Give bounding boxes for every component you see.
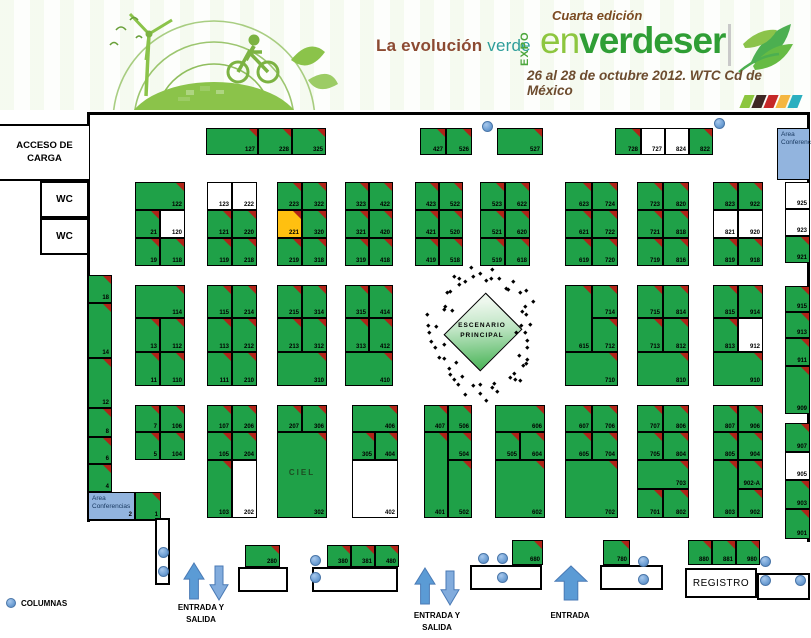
- booth-105[interactable]: 105: [207, 432, 232, 460]
- booth-502[interactable]: 502: [448, 460, 472, 518]
- booth-821[interactable]: 821: [713, 210, 738, 238]
- booth-320[interactable]: 320: [302, 210, 327, 238]
- booth-number: 623: [579, 202, 589, 209]
- booth-713[interactable]: 713: [637, 318, 663, 352]
- booth-923[interactable]: 923: [785, 209, 810, 236]
- booth-707[interactable]: 707: [637, 405, 663, 432]
- stage-dot: [484, 279, 488, 283]
- booth-914[interactable]: 914: [738, 285, 763, 318]
- booth-620[interactable]: 620: [505, 210, 530, 238]
- booth-6[interactable]: 6: [88, 437, 112, 464]
- booth-number: 823: [725, 202, 735, 209]
- booth-901[interactable]: 901: [785, 509, 810, 539]
- booth-204[interactable]: 204: [232, 432, 257, 460]
- booth-number: 714: [605, 310, 615, 317]
- booth-805[interactable]: 805: [713, 432, 738, 460]
- booth-715[interactable]: 715: [637, 285, 663, 318]
- booth-number: 306: [314, 424, 324, 431]
- booth-12[interactable]: 12: [88, 358, 112, 408]
- booth-number: 115: [219, 310, 229, 317]
- stage-dot: [442, 356, 446, 360]
- booth-312[interactable]: 312: [302, 318, 327, 352]
- booth-221[interactable]: 221: [277, 210, 302, 238]
- booth-number: 480: [386, 559, 396, 566]
- booth-719[interactable]: 719: [637, 238, 663, 266]
- booth-number: 606: [532, 424, 542, 431]
- booth-912[interactable]: 912: [738, 318, 763, 352]
- booth-780[interactable]: 780: [603, 540, 630, 565]
- booth-21[interactable]: 21: [135, 210, 160, 238]
- booth-911[interactable]: 911: [785, 338, 810, 366]
- booth-207[interactable]: 207: [277, 405, 302, 432]
- column-marker: [478, 553, 489, 564]
- booth-number: 220: [244, 230, 254, 237]
- booth-222[interactable]: 222: [232, 182, 257, 210]
- booth-number: 980: [747, 557, 757, 564]
- stage-label: ESCENARIOPRINCIPAL: [448, 291, 516, 371]
- booth-number: 724: [605, 202, 615, 209]
- expo-vertical-label: EXPO: [519, 50, 531, 66]
- booth-1[interactable]: 1: [135, 492, 161, 520]
- booth-803[interactable]: 803: [713, 460, 738, 518]
- booth-121[interactable]: 121: [207, 210, 232, 238]
- booth-710[interactable]: 710: [565, 352, 618, 386]
- booth-812[interactable]: 812: [663, 318, 689, 352]
- booth-819[interactable]: 819: [713, 238, 738, 266]
- booth-number: 810: [676, 378, 686, 385]
- booth-number: 923: [797, 228, 807, 235]
- booth-number: 103: [219, 510, 229, 517]
- booth-526[interactable]: 526: [446, 128, 472, 155]
- booth-number: 215: [289, 310, 299, 317]
- booth-212[interactable]: 212: [232, 318, 257, 352]
- booth-number: 506: [459, 424, 469, 431]
- booth-number: 901: [797, 531, 807, 538]
- column-marker: [497, 553, 508, 564]
- booth-904[interactable]: 904: [738, 432, 763, 460]
- booth-623[interactable]: 623: [565, 182, 592, 210]
- booth-607[interactable]: 607: [565, 405, 592, 432]
- booth-504[interactable]: 504: [448, 432, 472, 460]
- booth-19[interactable]: 19: [135, 238, 160, 266]
- booth-602[interactable]: 602: [495, 460, 545, 518]
- booth-401[interactable]: 401: [424, 432, 448, 518]
- booth-number: 212: [244, 344, 254, 351]
- booth-909[interactable]: 909: [785, 366, 810, 414]
- booth-number: 504: [459, 452, 469, 459]
- service-counter: [312, 567, 398, 592]
- booth-number: 812: [676, 344, 686, 351]
- booth-823[interactable]: 823: [713, 182, 738, 210]
- booth-606[interactable]: 606: [495, 405, 545, 432]
- stage-dot: [491, 268, 495, 272]
- column-marker: [714, 118, 725, 129]
- booth-906[interactable]: 906: [738, 405, 763, 432]
- booth-number: 123: [219, 202, 229, 209]
- booth-407[interactable]: 407: [424, 405, 448, 432]
- booth-813[interactable]: 813: [713, 318, 738, 352]
- stage-dot: [472, 275, 476, 279]
- booth-306[interactable]: 306: [302, 405, 327, 432]
- booth-number: 727: [652, 147, 662, 154]
- booth-380[interactable]: 380: [327, 545, 351, 567]
- booth-number: 502: [459, 510, 469, 517]
- booth-219[interactable]: 219: [277, 238, 302, 266]
- booth-680[interactable]: 680: [512, 540, 543, 565]
- booth-number: 907: [797, 444, 807, 451]
- booth-280[interactable]: 280: [245, 545, 280, 567]
- booth-822[interactable]: 822: [689, 128, 713, 155]
- logo-separator: [728, 24, 731, 66]
- booth-314[interactable]: 314: [302, 285, 327, 318]
- booth-number: 213: [289, 344, 299, 351]
- booth-110[interactable]: 110: [160, 352, 185, 386]
- booth-321[interactable]: 321: [345, 210, 369, 238]
- booth-number: 4: [106, 484, 109, 491]
- booth-727[interactable]: 727: [641, 128, 665, 155]
- booth-number: 618: [517, 258, 527, 265]
- booth-802[interactable]: 802: [663, 489, 689, 518]
- booth-114[interactable]: 114: [135, 285, 185, 318]
- booth-922[interactable]: 922: [738, 182, 763, 210]
- booth-313[interactable]: 313: [345, 318, 369, 352]
- booth-704[interactable]: 704: [592, 432, 618, 460]
- booth-18[interactable]: 18: [88, 275, 112, 303]
- booth-215[interactable]: 215: [277, 285, 302, 318]
- booth-220[interactable]: 220: [232, 210, 257, 238]
- booth-number: 814: [676, 310, 686, 317]
- booth-number: 704: [605, 452, 615, 459]
- booth-703[interactable]: 703: [637, 460, 689, 489]
- booth-404[interactable]: 404: [375, 432, 398, 460]
- booth-980[interactable]: 980: [736, 540, 760, 565]
- booth-number: 320: [314, 230, 324, 237]
- booth-number: 113: [219, 344, 229, 351]
- booth-518[interactable]: 518: [439, 238, 463, 266]
- booth-381[interactable]: 381: [351, 545, 375, 567]
- booth-302[interactable]: 302CIEL: [277, 432, 327, 518]
- booth-number: 221: [289, 230, 299, 237]
- booth-422[interactable]: 422: [369, 182, 393, 210]
- booth-number: 604: [532, 452, 542, 459]
- entrance-arrow-up-icon: [183, 562, 205, 605]
- booth-number: 218: [244, 258, 254, 265]
- booth-number: 414: [380, 310, 390, 317]
- column-marker: [795, 575, 806, 586]
- booth-number: 406: [385, 424, 395, 431]
- booth-618[interactable]: 618: [505, 238, 530, 266]
- booth-705[interactable]: 705: [637, 432, 663, 460]
- stage-dot: [525, 339, 529, 343]
- booth-723[interactable]: 723: [637, 182, 663, 210]
- booth-724[interactable]: 724: [592, 182, 618, 210]
- booth-number: 607: [579, 424, 589, 431]
- booth-number: 422: [380, 202, 390, 209]
- booth-number: 915: [797, 304, 807, 311]
- conference-area-1[interactable]: Area Conferencias: [777, 128, 810, 180]
- booth-410[interactable]: 410: [345, 352, 393, 386]
- booth-228[interactable]: 228: [258, 128, 292, 155]
- booth-480[interactable]: 480: [375, 545, 399, 567]
- booth-number: 204: [244, 452, 254, 459]
- booth-14[interactable]: 14: [88, 303, 112, 358]
- entrance-label: ENTRADA YSALIDA: [392, 610, 482, 634]
- booth-706[interactable]: 706: [592, 405, 618, 432]
- booth-number: 302: [314, 510, 324, 517]
- booth-number: 313: [356, 344, 366, 351]
- booth-210[interactable]: 210: [232, 352, 257, 386]
- booth-804[interactable]: 804: [663, 432, 689, 460]
- booth-number: 680: [530, 557, 540, 564]
- booth-122[interactable]: 122: [135, 182, 185, 210]
- booth-13[interactable]: 13: [135, 318, 160, 352]
- booth-414[interactable]: 414: [369, 285, 393, 318]
- booth-number: 526: [459, 147, 469, 154]
- booth-number: 318: [314, 258, 324, 265]
- booth-921[interactable]: 921: [785, 236, 810, 263]
- booth-number: 605: [579, 452, 589, 459]
- stage-dot: [511, 280, 515, 284]
- booth-number: 619: [579, 258, 589, 265]
- booth-119[interactable]: 119: [207, 238, 232, 266]
- booth-number: 914: [750, 310, 760, 317]
- booth-number: 918: [750, 258, 760, 265]
- booth-number: 228: [279, 147, 289, 154]
- booth-806[interactable]: 806: [663, 405, 689, 432]
- booth-714[interactable]: 714: [592, 285, 618, 318]
- booth-number: 322: [314, 202, 324, 209]
- booth-11[interactable]: 11: [135, 352, 160, 386]
- booth-621[interactable]: 621: [565, 210, 592, 238]
- booth-902-A[interactable]: 902-A: [738, 460, 763, 489]
- booth-810[interactable]: 810: [637, 352, 689, 386]
- booth-419[interactable]: 419: [415, 238, 439, 266]
- booth-310[interactable]: 310: [277, 352, 327, 386]
- booth-number: 104: [172, 452, 182, 459]
- booth-605[interactable]: 605: [565, 432, 592, 460]
- booth-880[interactable]: 880: [688, 540, 712, 565]
- booth-number: 18: [102, 295, 109, 302]
- booth-number: 206: [244, 424, 254, 431]
- booth-218[interactable]: 218: [232, 238, 257, 266]
- booth-number: 380: [338, 559, 348, 566]
- booth-816[interactable]: 816: [663, 238, 689, 266]
- booth-420[interactable]: 420: [369, 210, 393, 238]
- booth-423[interactable]: 423: [415, 182, 439, 210]
- booth-319[interactable]: 319: [345, 238, 369, 266]
- hall-wall-top: [88, 112, 810, 115]
- booth-202[interactable]: 202: [232, 460, 257, 518]
- booth-number: 410: [380, 378, 390, 385]
- booth-107[interactable]: 107: [207, 405, 232, 432]
- booth-number: 805: [725, 452, 735, 459]
- booth-915[interactable]: 915: [785, 286, 810, 312]
- stage-dot: [518, 290, 522, 294]
- booth-120[interactable]: 120: [160, 210, 185, 238]
- booth-615[interactable]: 615: [565, 285, 592, 352]
- booth-712[interactable]: 712: [592, 318, 618, 352]
- booth-number: 620: [517, 230, 527, 237]
- booth-820[interactable]: 820: [663, 182, 689, 210]
- leaf-logo-icon: [733, 14, 799, 76]
- column-legend-icon: [6, 598, 16, 608]
- entrance-label: ENTRADA: [525, 610, 615, 622]
- booth-4[interactable]: 4: [88, 464, 112, 492]
- booth-number: 780: [617, 557, 627, 564]
- booth-418[interactable]: 418: [369, 238, 393, 266]
- booth-323[interactable]: 323: [345, 182, 369, 210]
- booth-7[interactable]: 7: [135, 405, 160, 432]
- booth-number: 120: [172, 230, 182, 237]
- booth-406[interactable]: 406: [352, 405, 398, 432]
- booth-number: 922: [750, 202, 760, 209]
- booth-918[interactable]: 918: [738, 238, 763, 266]
- column-marker: [760, 556, 771, 567]
- booth-920[interactable]: 920: [738, 210, 763, 238]
- booth-number: 822: [700, 147, 710, 154]
- booth-number: 813: [725, 344, 735, 351]
- booth-305[interactable]: 305: [352, 432, 375, 460]
- booth-913[interactable]: 913: [785, 312, 810, 338]
- ciel-brand-label: CIEL: [278, 468, 326, 477]
- booth-881[interactable]: 881: [712, 540, 736, 565]
- booth-number: 906: [750, 424, 760, 431]
- booth-907[interactable]: 907: [785, 423, 810, 452]
- banner-tagline: La evolución verde: [376, 36, 531, 56]
- booth-number: 622: [517, 202, 527, 209]
- column-marker: [482, 121, 493, 132]
- booth-523[interactable]: 523: [480, 182, 505, 210]
- booth-206[interactable]: 206: [232, 405, 257, 432]
- booth-number: 402: [385, 510, 395, 517]
- booth-520[interactable]: 520: [439, 210, 463, 238]
- booth-106[interactable]: 106: [160, 405, 185, 432]
- stage-dot: [449, 373, 453, 377]
- stage-dot: [526, 345, 530, 349]
- booth-519[interactable]: 519: [480, 238, 505, 266]
- booth-903[interactable]: 903: [785, 480, 810, 509]
- stage-dot: [517, 354, 521, 358]
- booth-number: 815: [725, 310, 735, 317]
- booth-527[interactable]: 527: [497, 128, 543, 155]
- column-marker: [310, 572, 321, 583]
- booth-number: 315: [356, 310, 366, 317]
- booth-910[interactable]: 910: [713, 352, 763, 386]
- column-marker: [638, 556, 649, 567]
- booth-number: 210: [244, 378, 254, 385]
- stage-dot: [453, 377, 457, 381]
- booth-111[interactable]: 111: [207, 352, 232, 386]
- booth-103[interactable]: 103: [207, 460, 232, 518]
- booth-number: 703: [676, 481, 686, 488]
- conference-area-2[interactable]: Area Conferencias2: [88, 492, 135, 520]
- booth-104[interactable]: 104: [160, 432, 185, 460]
- booth-522[interactable]: 522: [439, 182, 463, 210]
- booth-720[interactable]: 720: [592, 238, 618, 266]
- stage-dot: [523, 304, 527, 308]
- booth-622[interactable]: 622: [505, 182, 530, 210]
- stage-dot: [426, 323, 430, 327]
- booth-number: 114: [172, 310, 182, 317]
- booth-721[interactable]: 721: [637, 210, 663, 238]
- booth-number: 122: [172, 202, 182, 209]
- booth-427[interactable]: 427: [420, 128, 446, 155]
- booth-127[interactable]: 127: [206, 128, 258, 155]
- booth-number: 521: [492, 230, 502, 237]
- booth-112[interactable]: 112: [160, 318, 185, 352]
- booth-number: 314: [314, 310, 324, 317]
- booth-325[interactable]: 325: [292, 128, 326, 155]
- booth-118[interactable]: 118: [160, 238, 185, 266]
- booth-number: 404: [385, 452, 395, 459]
- booth-number: 312: [314, 344, 324, 351]
- booth-702[interactable]: 702: [565, 460, 618, 518]
- booth-number: 921: [797, 255, 807, 262]
- booth-8[interactable]: 8: [88, 408, 112, 437]
- booth-818[interactable]: 818: [663, 210, 689, 238]
- booth-number: 5: [154, 452, 157, 459]
- exit-arrow-down-icon: [440, 570, 460, 611]
- booth-number: 881: [723, 557, 733, 564]
- booth-402[interactable]: 402: [352, 460, 398, 518]
- booth-113[interactable]: 113: [207, 318, 232, 352]
- booth-521[interactable]: 521: [480, 210, 505, 238]
- booth-115[interactable]: 115: [207, 285, 232, 318]
- booth-701[interactable]: 701: [637, 489, 663, 518]
- booth-318[interactable]: 318: [302, 238, 327, 266]
- booth-619[interactable]: 619: [565, 238, 592, 266]
- banner-colorstrip: [742, 95, 802, 108]
- booth-505[interactable]: 505: [495, 432, 520, 460]
- booth-number: 305: [362, 452, 372, 459]
- booth-number: 807: [725, 424, 735, 431]
- booth-number: 706: [605, 424, 615, 431]
- booth-5[interactable]: 5: [135, 432, 160, 460]
- registration-desk[interactable]: REGISTRO: [685, 568, 757, 598]
- booth-824[interactable]: 824: [665, 128, 689, 155]
- booth-number: 905: [797, 472, 807, 479]
- booth-905[interactable]: 905: [785, 452, 810, 480]
- booth-902[interactable]: 902: [738, 489, 763, 518]
- booth-604[interactable]: 604: [520, 432, 545, 460]
- booth-315[interactable]: 315: [345, 285, 369, 318]
- service-counter: [600, 565, 663, 590]
- booth-number: 527: [530, 147, 540, 154]
- booth-412[interactable]: 412: [369, 318, 393, 352]
- booth-number: 702: [605, 510, 615, 517]
- booth-214[interactable]: 214: [232, 285, 257, 318]
- booth-number: 721: [650, 230, 660, 237]
- booth-807[interactable]: 807: [713, 405, 738, 432]
- booth-123[interactable]: 123: [207, 182, 232, 210]
- booth-number: 325: [313, 147, 323, 154]
- booth-506[interactable]: 506: [448, 405, 472, 432]
- booth-814[interactable]: 814: [663, 285, 689, 318]
- booth-213[interactable]: 213: [277, 318, 302, 352]
- booth-223[interactable]: 223: [277, 182, 302, 210]
- booth-322[interactable]: 322: [302, 182, 327, 210]
- entrance-arrow-up-icon: [554, 565, 588, 606]
- booth-815[interactable]: 815: [713, 285, 738, 318]
- booth-728[interactable]: 728: [615, 128, 641, 155]
- booth-number: 21: [150, 230, 157, 237]
- stage-dot: [471, 383, 475, 387]
- stage-dot: [456, 383, 460, 387]
- booth-925[interactable]: 925: [785, 182, 810, 209]
- booth-421[interactable]: 421: [415, 210, 439, 238]
- booth-number: 381: [362, 559, 372, 566]
- booth-722[interactable]: 722: [592, 210, 618, 238]
